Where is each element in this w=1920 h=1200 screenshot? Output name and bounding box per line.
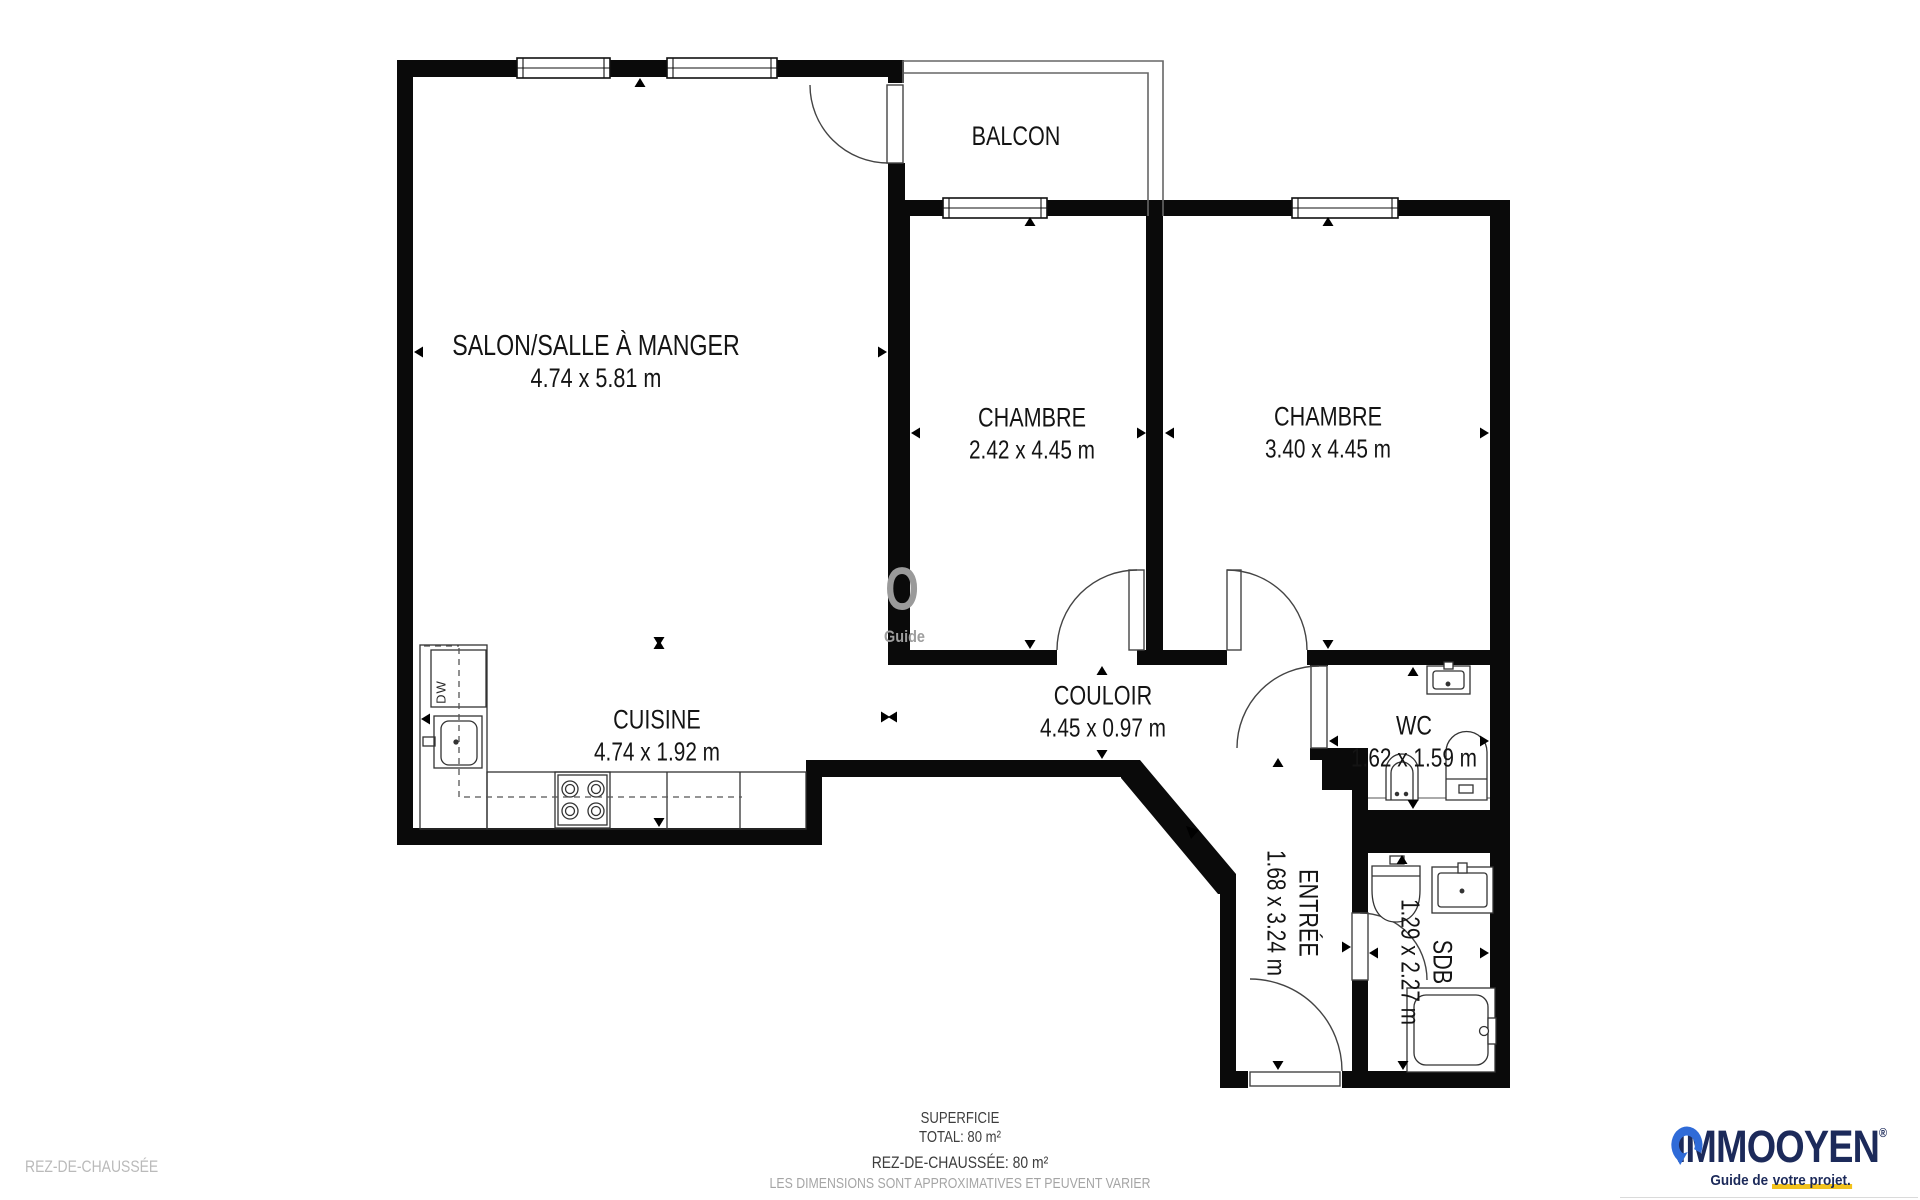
door-wc [1237, 666, 1327, 748]
arrow-salon-left [414, 347, 423, 358]
logo-tagline: Guide de votre projet. [1659, 1172, 1904, 1189]
summary-disclaimer: LES DIMENSIONS SONT APPROXIMATIVES ET PE… [173, 1175, 1747, 1192]
registered-mark: ® [1879, 1126, 1886, 1139]
room-name: CHAMBRE [1265, 402, 1391, 434]
wall-bedrooms-bottom [888, 650, 1510, 665]
room-dims: 3.40 x 4.45 m [1265, 434, 1391, 465]
arrow-hallway-left [888, 712, 897, 723]
area-summary: SUPERFICIE TOTAL: 80 m² REZ-DE-CHAUSSÉE:… [0, 1110, 1920, 1192]
room-dims: 1.29 x 2.27 m [1395, 899, 1426, 1025]
room-label-wc: WC 1.62 x 1.59 m [1351, 711, 1477, 774]
arrow-salon-right [878, 347, 887, 358]
summary-floor-total: REZ-DE-CHAUSSÉE: 80 m² [173, 1153, 1747, 1173]
room-label-chambre1: CHAMBRE 2.42 x 4.45 m [969, 403, 1095, 466]
wall-entry-left [1220, 876, 1236, 1088]
arrow-wc-bottom [1408, 800, 1419, 809]
door-entrance [1250, 979, 1342, 1086]
arrow-bedroom1-bottom [1025, 640, 1036, 649]
room-name: ENTRÉE [1291, 850, 1323, 976]
room-name: WC [1351, 711, 1477, 743]
door-bedroom2 [1227, 570, 1307, 650]
arrow-wc-left [1329, 736, 1338, 747]
opening-bedroom2 [1227, 648, 1307, 667]
floor-label: REZ-DE-CHAUSSÉE [25, 1157, 158, 1177]
room-name: BALCON [972, 121, 1061, 153]
wall-hallway-bottom [806, 760, 1138, 777]
window-salon-1 [517, 58, 610, 78]
dimension-arrows [414, 78, 1489, 1070]
arrow-entry-right [1342, 942, 1351, 953]
wall-left-exterior [397, 60, 413, 845]
floorplan-drawing [0, 0, 1920, 1200]
arrow-hallway-bottom [1097, 750, 1108, 759]
watermark-letter: O [885, 555, 919, 624]
room-label-balcon: BALCON [972, 121, 1061, 153]
arrow-bedroom2-bottom [1323, 640, 1334, 649]
floorplan-page: O Guide SALON/SALLE À MANGER 4.74 x 5.81… [0, 0, 1920, 1200]
window-bedroom1 [943, 198, 1047, 218]
kitchen-sink-icon [423, 716, 482, 768]
arrow-sdb-left [1369, 948, 1378, 959]
logo-divider-line [1620, 1197, 1918, 1198]
windows [517, 58, 1398, 218]
logo-d-arrow-icon [1668, 1124, 1706, 1169]
summary-total: TOTAL: 80 m² [173, 1129, 1747, 1147]
wall-entry-right-lower [1352, 980, 1368, 1088]
room-dims: 1.62 x 1.59 m [1351, 743, 1477, 774]
room-name: SDB [1425, 899, 1457, 1025]
door-bedroom1 [1057, 570, 1144, 650]
arrow-bedroom2-left [1165, 428, 1174, 439]
wall-right-exterior [1490, 200, 1510, 1088]
opening-bedroom1 [1057, 648, 1137, 667]
room-dims: 1.68 x 3.24 m [1261, 850, 1292, 976]
room-label-cuisine: CUISINE 4.74 x 1.92 m [594, 705, 720, 768]
tagline-prefix: Guide de [1710, 1172, 1772, 1189]
door-balcony [810, 85, 903, 163]
room-name: SALON/SALLE À MANGER [452, 329, 740, 363]
arrow-bedroom2-right [1480, 428, 1489, 439]
arrow-bedroom1-left [911, 428, 920, 439]
stove-icon [555, 772, 610, 828]
arrow-sdb-right [1480, 948, 1489, 959]
arrow-kitchen-top [654, 640, 665, 649]
room-label-sdb: SDB 1.29 x 2.27 m [1395, 899, 1458, 1025]
wall-diagonal [1121, 760, 1236, 894]
room-label-chambre2: CHAMBRE 3.40 x 4.45 m [1265, 402, 1391, 465]
room-dims: 4.74 x 5.81 m [452, 363, 740, 395]
arrow-entry-top [1273, 758, 1284, 767]
watermark-word: Guide [884, 627, 925, 647]
room-dims: 4.45 x 0.97 m [1040, 713, 1166, 744]
arrow-salon-top [635, 78, 646, 87]
room-name: CHAMBRE [969, 403, 1095, 435]
dishwasher-label: DW [434, 680, 449, 704]
window-salon-2 [667, 58, 777, 78]
arrow-entry-bottom [1273, 1061, 1284, 1070]
room-name: COULOIR [1040, 681, 1166, 713]
summary-title: SUPERFICIE [173, 1110, 1747, 1128]
room-label-entree: ENTRÉE 1.68 x 3.24 m [1261, 850, 1324, 976]
logo-wordmark: IMMO OYEN ® [1667, 1124, 1895, 1169]
room-dims: 4.74 x 1.92 m [594, 737, 720, 768]
arrow-kitchen-bottom [654, 818, 665, 827]
logo-text-suffix: OYEN [1775, 1124, 1879, 1169]
wall-kitchen-bottom [397, 828, 822, 845]
arrow-bedroom1-right [1137, 428, 1146, 439]
wall-wc-left-top [1310, 650, 1328, 666]
room-label-couloir: COULOIR 4.45 x 0.97 m [1040, 681, 1166, 744]
room-name: CUISINE [594, 705, 720, 737]
room-dims: 2.42 x 4.45 m [969, 435, 1095, 466]
arrow-wc-top [1408, 667, 1419, 676]
room-label-salon: SALON/SALLE À MANGER 4.74 x 5.81 m [452, 329, 740, 395]
kitchen-counter-bottom [487, 772, 806, 829]
arrow-hallway-top [1097, 666, 1108, 675]
window-bedroom2 [1292, 198, 1398, 218]
wc-sink-icon [1427, 662, 1470, 694]
arrow-kitchen-left [421, 714, 430, 725]
wall-top-exterior [397, 60, 888, 77]
wall-bedroom-divider [1146, 216, 1163, 650]
tagline-highlight: votre projet. [1772, 1172, 1852, 1189]
wall-balcony-corner [888, 60, 904, 83]
immodoyen-logo: IMMO OYEN ® Guide de votre projet. [1645, 1124, 1917, 1189]
wall-wc-sdb-band [1352, 810, 1510, 853]
